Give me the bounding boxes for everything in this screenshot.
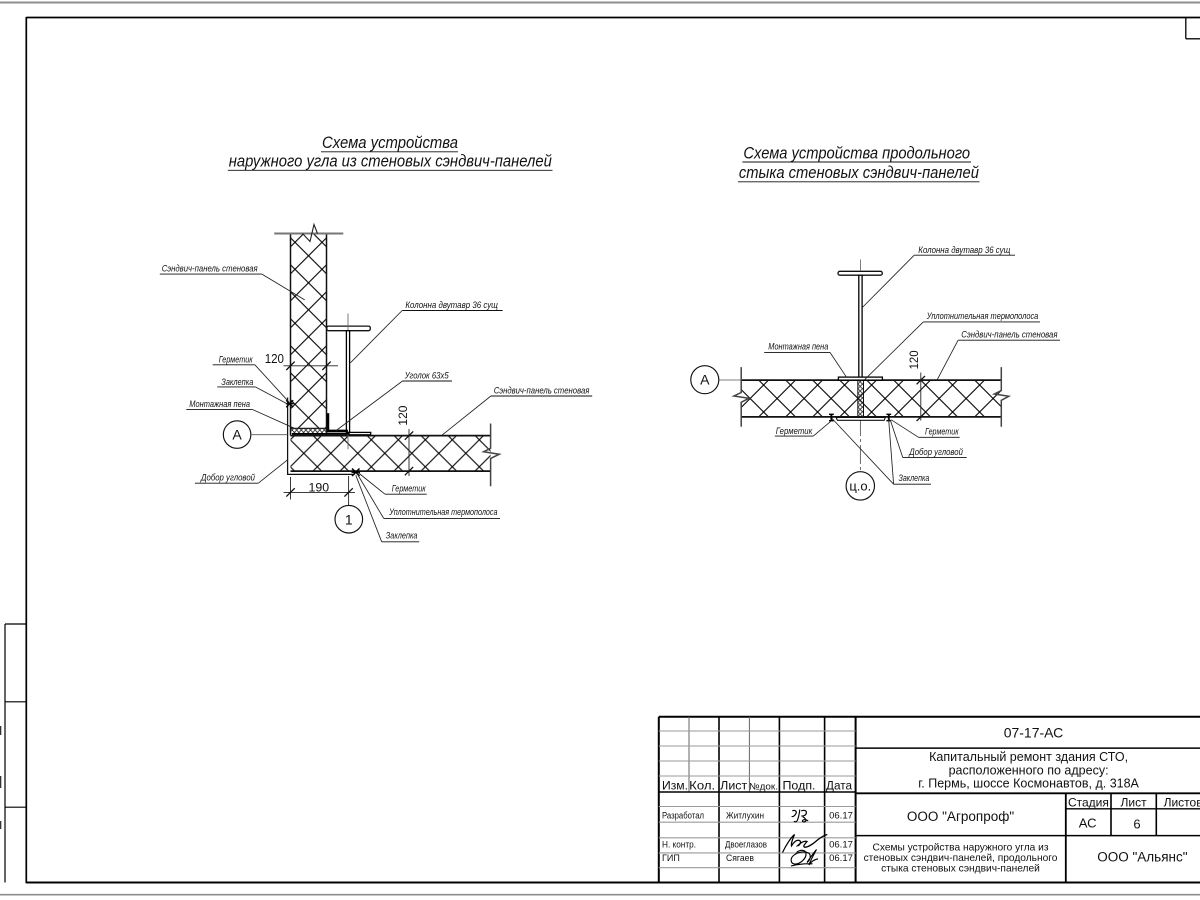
svg-text:расположенного по адресу:: расположенного по адресу: (949, 763, 1109, 777)
svg-text:Заклепка: Заклепка (899, 473, 930, 484)
svg-text:Листов: Листов (1164, 795, 1200, 809)
svg-text:Схемы устройства наружного угл: Схемы устройства наружного угла из (872, 843, 1048, 854)
svg-text:120: 120 (265, 352, 284, 366)
svg-text:Лист: Лист (720, 780, 748, 792)
svg-text:Кол.: Кол. (689, 780, 715, 792)
svg-text:Добор угловой: Добор угловой (908, 447, 963, 458)
svg-text:120: 120 (907, 350, 921, 369)
svg-text:А: А (700, 372, 710, 388)
svg-text:г. Пермь, шоссе Космонавтов, д: г. Пермь, шоссе Космонавтов, д. 318А (918, 777, 1139, 791)
svg-text:06.17: 06.17 (829, 811, 853, 822)
svg-text:Н. контр.: Н. контр. (662, 840, 696, 850)
svg-text:Схема устройства продольного: Схема устройства продольного (743, 144, 970, 162)
svg-text:Герметик: Герметик (392, 484, 426, 495)
svg-text:06.17: 06.17 (829, 840, 853, 851)
svg-text:ГИП: ГИП (662, 853, 680, 863)
svg-text:190: 190 (309, 481, 330, 495)
svg-text:120: 120 (396, 405, 410, 425)
svg-text:Сэндвич-панель стеновая: Сэндвич-панель стеновая (494, 385, 590, 396)
svg-text:Колонна двутавр 36 сущ: Колонна двутавр 36 сущ (405, 300, 498, 311)
svg-text:07-17-АС: 07-17-АС (1004, 725, 1064, 741)
svg-text:Герметик: Герметик (776, 426, 813, 437)
svg-text:Заклепка: Заклепка (386, 530, 418, 541)
svg-text:Двоеглазов: Двоеглазов (725, 840, 767, 850)
svg-text:6: 6 (1133, 817, 1140, 832)
svg-text:Герметик: Герметик (925, 426, 959, 437)
svg-text:Уплотнительная термополоса: Уплотнительная термополоса (388, 507, 497, 518)
svg-text:Капитальный ремонт здания СТО,: Капитальный ремонт здания СТО, (929, 750, 1128, 764)
svg-text:ц.о.: ц.о. (849, 479, 871, 494)
svg-text:Монтажная пена: Монтажная пена (768, 342, 828, 353)
svg-text:А: А (232, 427, 242, 443)
svg-text:Житлухин: Житлухин (726, 811, 764, 821)
svg-text:Разработал: Разработал (662, 811, 704, 821)
svg-text:ООО "Альянс": ООО "Альянс" (1097, 850, 1187, 865)
svg-text:Колонна двутавр 36 сущ: Колонна двутавр 36 сущ (918, 245, 1010, 256)
svg-text:Уголок 63х5: Уголок 63х5 (404, 371, 449, 382)
svg-text:АС: АС (1079, 816, 1097, 831)
svg-text:Схема устройства: Схема устройства (322, 134, 458, 152)
svg-text:Сягаев: Сягаев (726, 853, 754, 863)
svg-text:Стадия: Стадия (1068, 795, 1109, 809)
svg-text:Уплотнительная термополоса: Уплотнительная термополоса (926, 311, 1038, 322)
svg-text:Добор угловой: Добор угловой (200, 472, 255, 483)
svg-text:Дата: Дата (826, 780, 853, 792)
svg-text:1: 1 (345, 511, 353, 527)
svg-text:06.17: 06.17 (829, 853, 853, 864)
svg-text:Монтажная пена: Монтажная пена (189, 399, 250, 410)
svg-text:Сэндвич-панель стеновая: Сэндвич-панель стеновая (162, 264, 258, 275)
svg-text:стыка стеновых сэндвич-панелей: стыка стеновых сэндвич-панелей (881, 863, 1040, 874)
svg-text:Сэндвич-панель стеновая: Сэндвич-панель стеновая (961, 330, 1057, 341)
svg-text:Герметик: Герметик (219, 355, 253, 366)
svg-text:Изм.: Изм. (662, 780, 688, 792)
svg-text:ООО "Агропроф": ООО "Агропроф" (907, 809, 1014, 824)
svg-text:Лист: Лист (1121, 795, 1148, 809)
svg-text:№док.: №док. (749, 781, 778, 792)
svg-text:наружного угла из стеновых сэн: наружного угла из стеновых сэндвич-панел… (229, 153, 552, 171)
svg-text:Подп.: Подп. (783, 780, 816, 792)
svg-text:стыка стеновых сэндвич-панелей: стыка стеновых сэндвич-панелей (739, 164, 979, 182)
